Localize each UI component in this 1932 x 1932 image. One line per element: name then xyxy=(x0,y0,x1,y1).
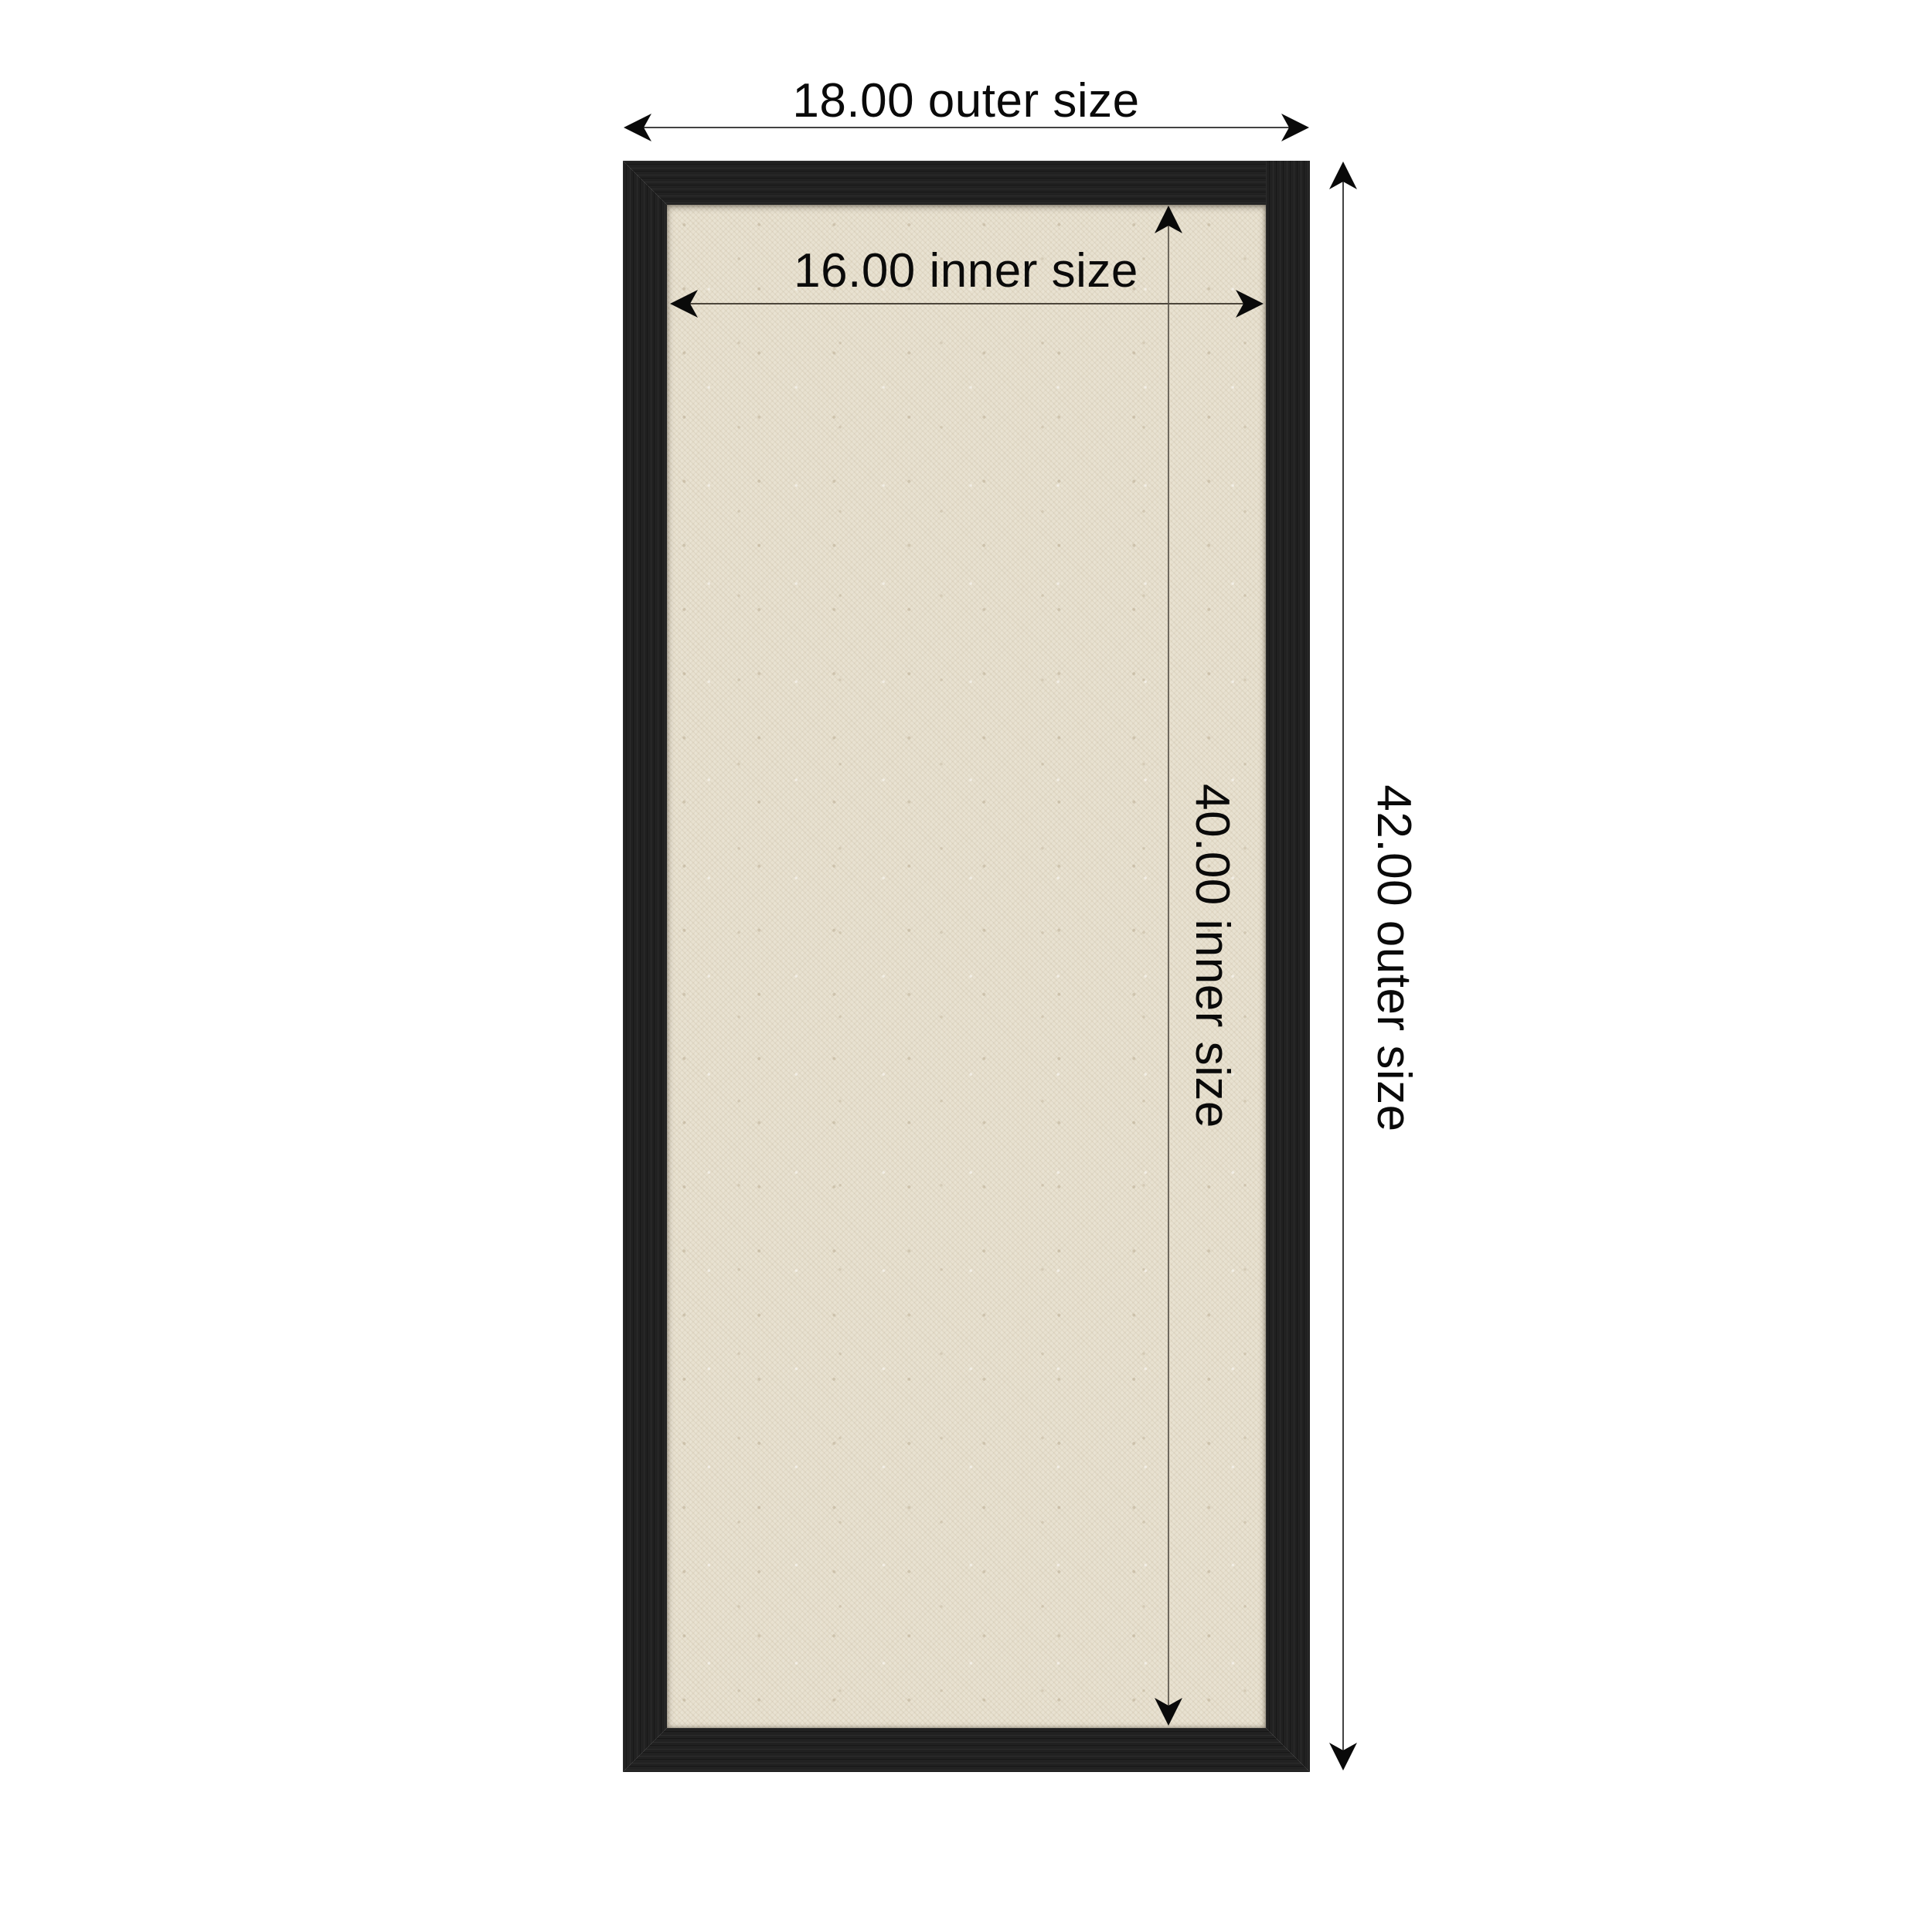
outer-height-dimension xyxy=(1329,162,1357,1770)
outer-height-dimension-label: 42.00 outer size xyxy=(1369,784,1417,1131)
arrowhead-left-icon xyxy=(624,114,651,141)
arrowhead-right-icon xyxy=(1281,114,1309,141)
frame-side-top xyxy=(623,161,1310,205)
outer-width-dimension-label: 18.00 outer size xyxy=(792,77,1139,125)
product-dimension-diagram: 18.00 outer size 16.00 inner size 40.00 … xyxy=(0,0,1932,1932)
arrowhead-up-icon xyxy=(1329,162,1357,189)
linen-canvas xyxy=(667,205,1266,1728)
frame-side-right xyxy=(1266,161,1310,1772)
frame-side-bottom xyxy=(623,1728,1310,1772)
frame-side-left xyxy=(623,161,667,1772)
inner-width-dimension-label: 16.00 inner size xyxy=(794,247,1138,295)
inner-height-dimension-label: 40.00 inner size xyxy=(1188,784,1236,1128)
arrowhead-down-icon xyxy=(1329,1743,1357,1770)
